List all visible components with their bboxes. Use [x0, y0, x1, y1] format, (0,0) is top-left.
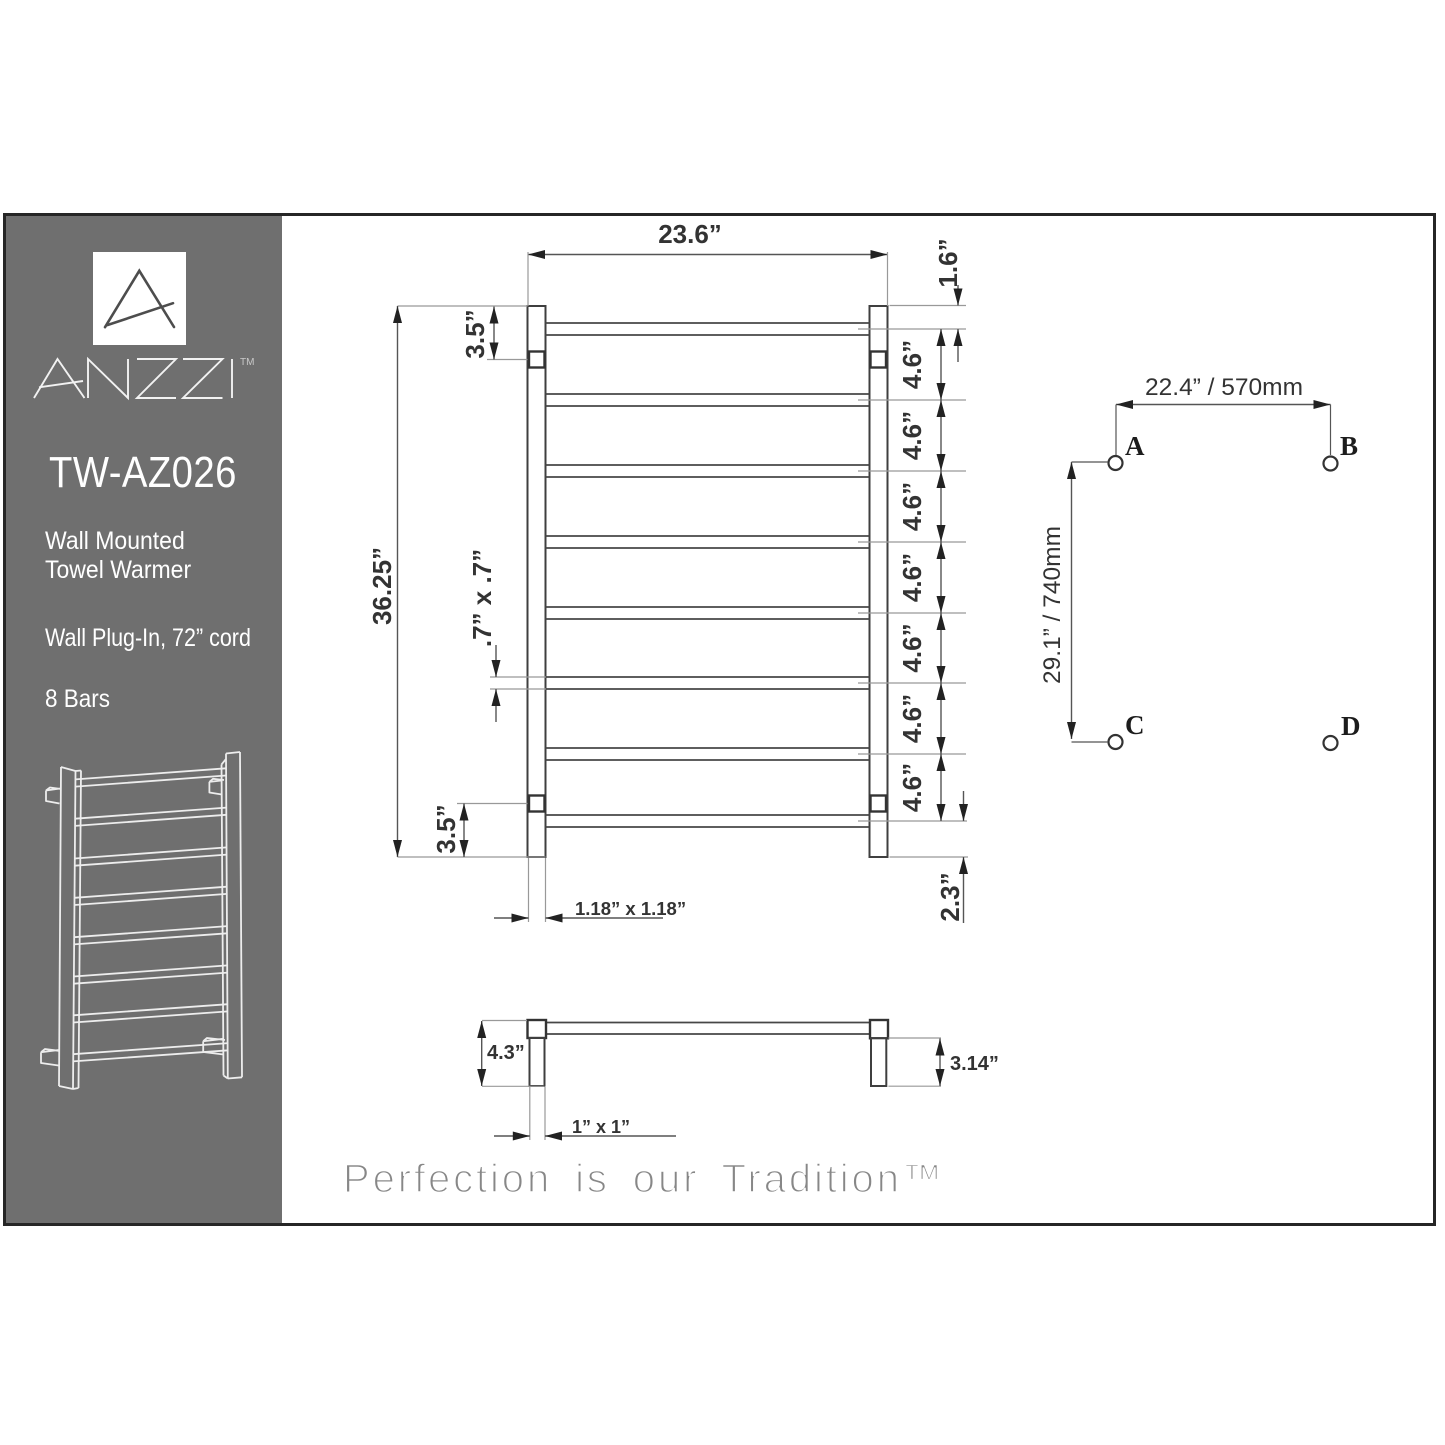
svg-text:4.6”: 4.6” [897, 553, 927, 602]
svg-text:2.3”: 2.3” [935, 872, 965, 921]
svg-text:B: B [1340, 431, 1358, 461]
svg-text:A: A [1125, 431, 1145, 461]
svg-text:4.6”: 4.6” [897, 694, 927, 743]
svg-text:3.5”: 3.5” [431, 804, 461, 853]
svg-text:36.25”: 36.25” [367, 547, 397, 625]
svg-text:4.6”: 4.6” [897, 763, 927, 812]
svg-text:1” x 1”: 1” x 1” [572, 1117, 630, 1137]
svg-text:22.4” / 570mm: 22.4” / 570mm [1145, 374, 1303, 401]
svg-text:1.18” x 1.18”: 1.18” x 1.18” [575, 898, 686, 919]
svg-text:.7” x .7”: .7” x .7” [467, 549, 497, 647]
svg-text:4.6”: 4.6” [897, 482, 927, 531]
svg-text:4.6”: 4.6” [897, 340, 927, 389]
svg-text:23.6”: 23.6” [658, 219, 722, 249]
svg-text:3.5”: 3.5” [460, 309, 490, 358]
svg-text:29.1” / 740mm: 29.1” / 740mm [1039, 526, 1066, 684]
svg-text:4.6”: 4.6” [897, 411, 927, 460]
svg-text:1.6”: 1.6” [933, 238, 963, 287]
svg-text:C: C [1125, 710, 1145, 740]
svg-text:4.3”: 4.3” [487, 1042, 525, 1064]
svg-text:D: D [1341, 711, 1361, 741]
svg-text:4.6”: 4.6” [897, 623, 927, 672]
svg-text:3.14”: 3.14” [950, 1053, 999, 1075]
